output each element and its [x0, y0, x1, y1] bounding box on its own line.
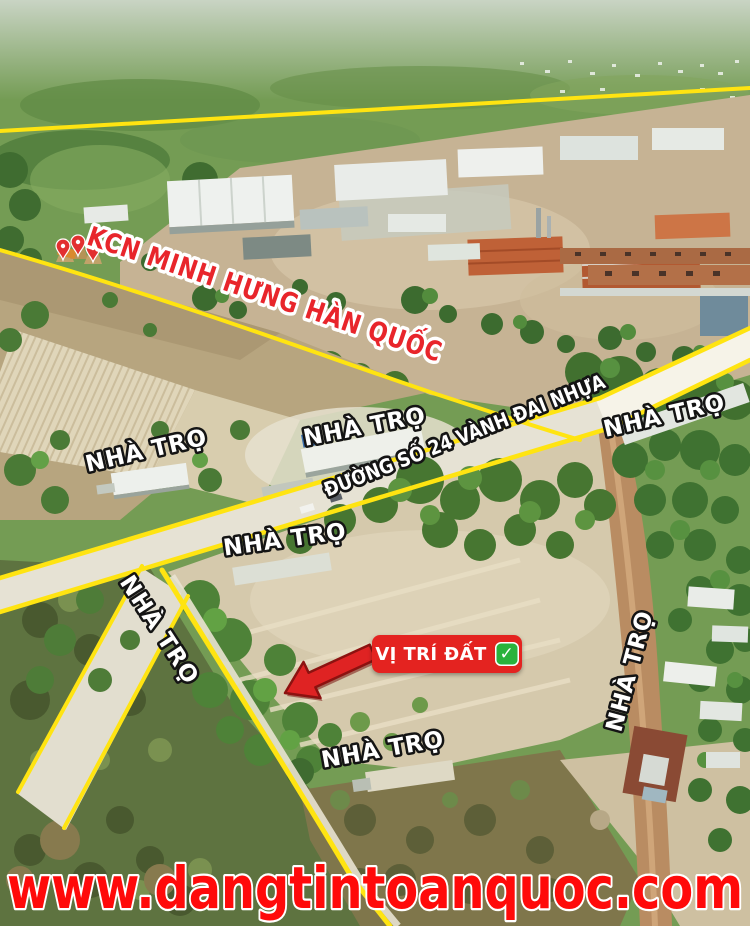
location-badge: VỊ TRÍ ĐẤT ✓ — [372, 635, 522, 673]
website-watermark: www.dangtintoanquoc.com — [7, 854, 743, 922]
aerial-photo: KCN MINH HƯNG HÀN QUỐC ĐƯỜNG SỐ 24 VÀNH … — [0, 0, 750, 926]
factory-orange-walls — [560, 248, 750, 296]
location-badge-label: VỊ TRÍ ĐẤT — [375, 644, 486, 665]
photo-scene: KCN MINH HƯNG HÀN QUỐC ĐƯỜNG SỐ 24 VÀNH … — [0, 0, 750, 926]
check-icon: ✓ — [495, 642, 519, 666]
